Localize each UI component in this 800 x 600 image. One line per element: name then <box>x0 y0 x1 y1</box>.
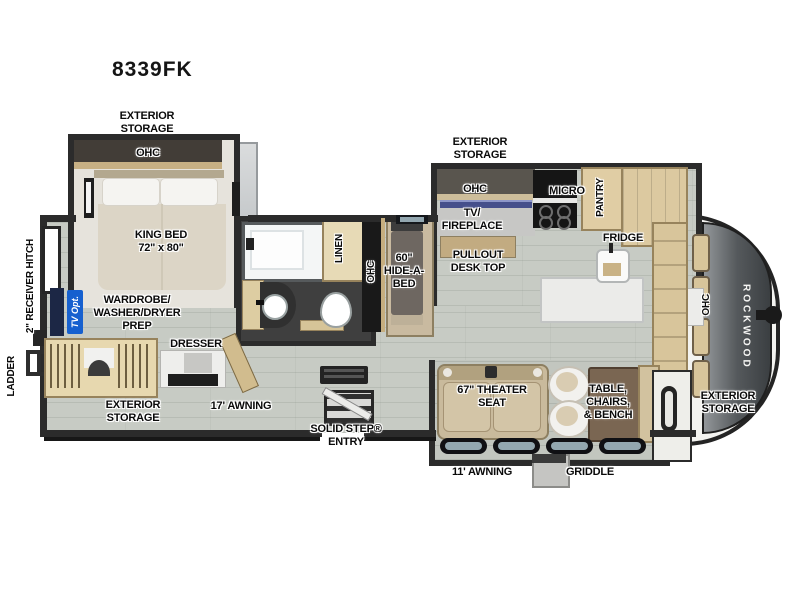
ladder-label-wrap: LADDER <box>4 342 20 410</box>
ladder-rung <box>37 354 41 372</box>
frame-shadow-left <box>44 437 320 441</box>
wall-bottom-left <box>40 430 322 437</box>
linen-label-wrap: LINEN <box>330 224 350 274</box>
shower-pan <box>250 230 304 270</box>
dresser-label: DRESSER <box>164 338 228 351</box>
entry-grill-line-2 <box>324 375 364 378</box>
hide-a-bed-arm <box>391 315 423 325</box>
ext-storage-front-label: EXTERIOR STORAGE <box>690 390 766 416</box>
bedroom-window-right <box>232 182 240 216</box>
ohc-front-label-wrap: OHC <box>700 282 714 328</box>
ext-storage-rear-label: EXTERIOR STORAGE <box>92 399 174 425</box>
floorplan-canvas: 8339FK TV Opt. <box>0 0 800 600</box>
pantry-label-wrap: PANTRY <box>592 170 610 224</box>
bedroom-ohc-shelf <box>74 162 222 169</box>
bedroom-tv <box>50 288 64 336</box>
island-caddy <box>603 263 621 276</box>
cupholder-left <box>443 368 452 377</box>
tv-opt-label: TV Opt. <box>70 296 80 328</box>
ladder-label: LADDER <box>6 356 18 396</box>
awning-17-label: 17' AWNING <box>196 400 286 413</box>
slide-window-4-glass <box>604 442 641 450</box>
solid-step-label: SOLID STEP® ENTRY <box>300 423 392 449</box>
hall-window-glass <box>400 217 424 222</box>
wardrobe-hangers-right <box>118 344 148 388</box>
toilet <box>320 292 352 328</box>
receiver-hitch-label: 2" RECEIVER HITCH <box>25 239 37 333</box>
cupholder-right <box>533 368 542 377</box>
bed-headboard <box>94 170 224 178</box>
wardrobe-prep-label: WARDROBE/ WASHER/DRYER PREP <box>84 294 190 332</box>
ohc-bedroom-label: OHC <box>120 147 176 160</box>
tv-opt-badge: TV Opt. <box>67 290 83 334</box>
linen-label: LINEN <box>334 234 346 263</box>
coupler-knob <box>764 306 782 324</box>
pantry-label: PANTRY <box>595 178 607 217</box>
wardrobe-hangers-left <box>50 344 80 388</box>
ext-storage-bedroom-label: EXTERIOR STORAGE <box>107 110 187 136</box>
pullout-desk-label: PULLOUT DESK TOP <box>438 249 518 275</box>
bedroom-window-left-glass <box>86 182 91 213</box>
tv-fireplace-label: TV/ FIREPLACE <box>432 207 512 233</box>
exterior-storage-door-panel <box>665 391 673 427</box>
bathroom-sink <box>262 294 288 320</box>
ohc-kitchen-label: OHC <box>450 183 500 196</box>
rear-wall-window <box>42 226 61 294</box>
brand-wordmark: ROCKWOOD <box>741 284 752 370</box>
dresser-box <box>184 353 212 373</box>
burner-4 <box>557 216 571 230</box>
micro-label: MICRO <box>542 185 592 198</box>
front-ohc-1 <box>692 234 710 272</box>
ladder-end <box>26 350 30 376</box>
kitchen-island <box>540 277 644 323</box>
griddle-lid <box>532 454 566 463</box>
awning-11-label: 11' AWNING <box>436 466 528 479</box>
receiver-hitch-label-wrap: 2" RECEIVER HITCH <box>22 222 40 350</box>
king-bed-label: KING BED 72" x 80" <box>104 229 218 255</box>
ohc-front-label: OHC <box>701 294 713 316</box>
griddle-label: GRIDDLE <box>564 466 616 479</box>
hide-a-bed-label: 60" HIDE-A- BED <box>372 252 436 290</box>
shower-faucet <box>246 238 254 250</box>
table-chairs-label: TABLE, CHAIRS, & BENCH <box>574 383 642 421</box>
fridge-label: FRIDGE <box>594 232 652 245</box>
model-title: 8339FK <box>112 58 193 82</box>
burner-3 <box>539 216 553 230</box>
sink-faucet <box>256 300 264 305</box>
theater-console <box>485 366 497 378</box>
bed-pillow-left <box>102 178 160 206</box>
dresser-tablet <box>168 374 218 386</box>
slide-window-2-glass <box>498 442 535 450</box>
slide-window-1-glass <box>445 442 482 450</box>
theater-seat-label: 67" THEATER SEAT <box>447 384 537 410</box>
ext-storage-kitchen-label: EXTERIOR STORAGE <box>440 136 520 162</box>
slide-window-3-glass <box>551 442 588 450</box>
entry-grill-line-1 <box>324 369 364 372</box>
brand-wordmark-wrap: ROCKWOOD <box>737 272 755 382</box>
wall-bottom-front <box>650 430 696 437</box>
stove-handle <box>533 198 577 203</box>
bed-pillow-right <box>160 178 218 206</box>
